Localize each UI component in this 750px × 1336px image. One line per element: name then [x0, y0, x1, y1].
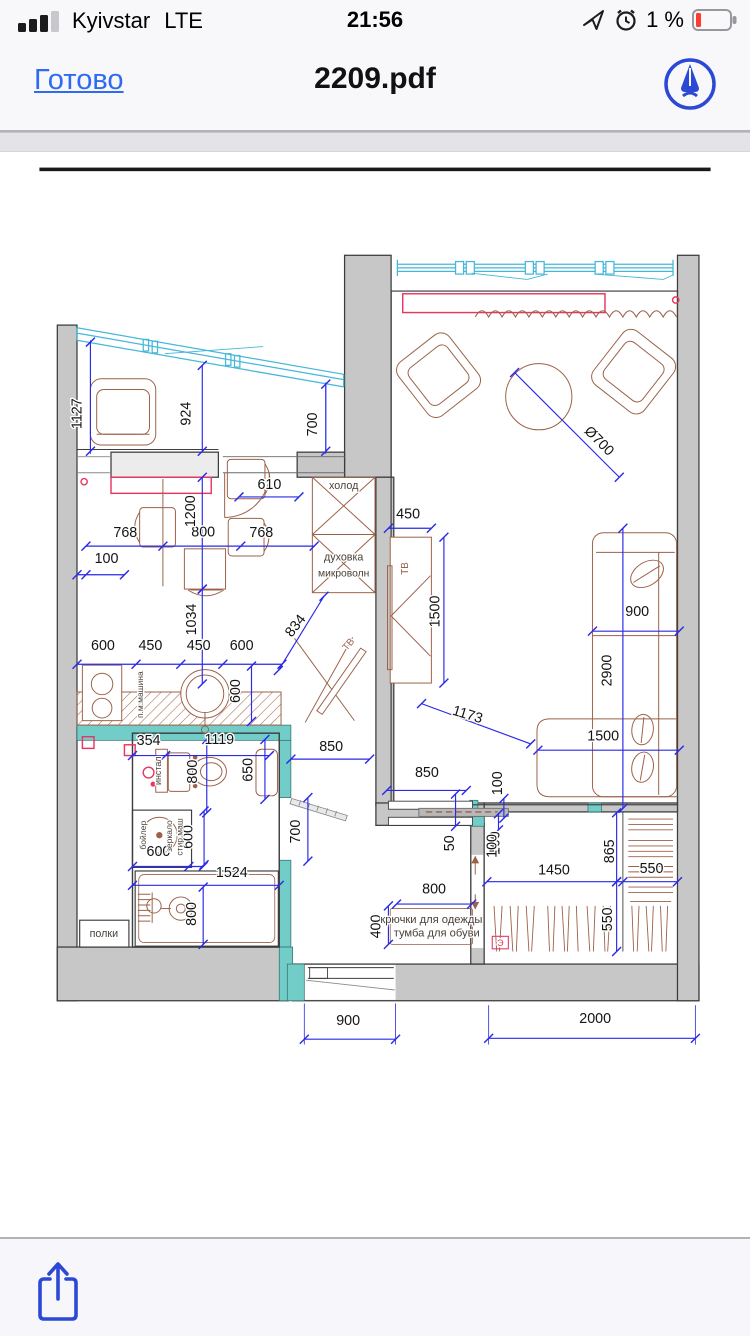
nav-bar: Готово 2209.pdf [0, 40, 750, 132]
wardrobe-hanging-clothes [494, 906, 668, 952]
room-label: ТВ [400, 562, 411, 575]
room-label: бойлер [138, 821, 148, 850]
dimension-label: 900 [625, 604, 649, 620]
document-title: 2209.pdf [0, 62, 750, 96]
dimension-label: 550 [600, 907, 616, 931]
dimension-label: 800 [184, 902, 200, 926]
dimension-label: 1034 [184, 604, 200, 636]
dimension-label: 100 [490, 771, 506, 795]
page-gap [0, 132, 750, 152]
room-label: крючки для одежды [380, 914, 482, 926]
room-label: полки [90, 928, 118, 940]
balcony-window [77, 328, 344, 387]
kitchen-sink [181, 670, 229, 718]
dimension-line [515, 373, 620, 478]
living-room-window [397, 260, 673, 280]
bathroom-door-leaf [290, 798, 347, 820]
dimension-label: 1500 [427, 596, 443, 628]
dimension-label: 924 [179, 402, 195, 426]
dimension-label: 768 [249, 525, 273, 541]
dimension-label: 700 [288, 820, 304, 844]
dimension-label: 850 [319, 739, 343, 755]
alarm-clock-icon [614, 8, 638, 32]
dimension-label: 450 [187, 638, 211, 654]
room-label: холод [329, 480, 359, 492]
room-label: тумба для обуви [394, 927, 480, 939]
room-label: зеркало [164, 820, 174, 852]
walls-layer [57, 255, 699, 1000]
dimension-label: 100 [485, 834, 501, 858]
dimension-label: 800 [185, 760, 201, 784]
share-button[interactable] [36, 1253, 80, 1323]
floor-plan-drawing: 1127924700Ø70061076880076810012001034834… [0, 130, 750, 1237]
dimension-label: 1500 [587, 728, 619, 744]
dimension-label: 610 [257, 477, 281, 493]
dimension-label: 600 [228, 679, 244, 703]
room-label: инстал [153, 756, 163, 785]
dimension-label: 100 [95, 551, 119, 567]
bottom-toolbar [0, 1237, 750, 1336]
dimension-label: 865 [602, 839, 618, 863]
battery-percent-label: 1 % [646, 7, 684, 33]
dimension-label: 850 [415, 765, 439, 781]
bathroom-sink [256, 749, 277, 796]
dimension-label: 2000 [579, 1011, 611, 1027]
dimension-label: 1200 [183, 495, 199, 527]
dimension-label: 600 [230, 638, 254, 654]
iphone-screen: Kyivstar LTE 21:56 1 % Готово 2209.pdf [0, 0, 750, 1334]
room-label: стир.маш [175, 818, 185, 856]
dimension-label: Ø700 [581, 423, 617, 459]
battery-icon [692, 8, 738, 32]
dimension-label: 800 [422, 881, 446, 897]
location-arrow-icon [582, 8, 606, 32]
room-label: п.м.машина [135, 671, 145, 718]
armchair-left [392, 329, 485, 422]
dimension-label: 50 [442, 835, 458, 851]
dimension-label: 1450 [538, 863, 570, 879]
dimension-label: 450 [396, 506, 420, 522]
dimension-label: 700 [305, 412, 321, 436]
dimension-label: 600 [91, 638, 115, 654]
room-label: духовка [324, 551, 363, 563]
dimension-label: 1524 [216, 865, 248, 881]
dimension-label: 1173 [450, 703, 484, 727]
pdf-document-view[interactable]: 1127924700Ø70061076880076810012001034834… [0, 130, 750, 1237]
room-label: микроволн [318, 569, 369, 580]
dimension-label: 768 [113, 525, 137, 541]
dimension-label: 550 [640, 861, 664, 877]
markup-pen-button[interactable] [658, 52, 722, 116]
dimension-label: 834 [282, 612, 309, 641]
dimension-label: 1127 [69, 398, 85, 429]
dimension-label: 650 [240, 758, 256, 782]
dimension-label: 450 [138, 638, 162, 654]
tv-stand [388, 537, 432, 683]
status-right: 1 % [582, 7, 738, 33]
room-label: ТВ [341, 636, 358, 653]
dimension-label: 1119 [204, 732, 234, 748]
pdf-frame-line [39, 168, 710, 172]
dimension-label: 2900 [599, 655, 615, 687]
kitchen-corner-tv [294, 637, 366, 722]
room-label: Э [497, 938, 504, 948]
balcony-armchair [90, 379, 155, 445]
dimension-label: 354 [137, 733, 161, 749]
dimension-label: 900 [336, 1013, 360, 1029]
armchair-right [587, 325, 680, 418]
curtain-line [475, 311, 676, 317]
status-bar: Kyivstar LTE 21:56 1 % [0, 0, 750, 40]
